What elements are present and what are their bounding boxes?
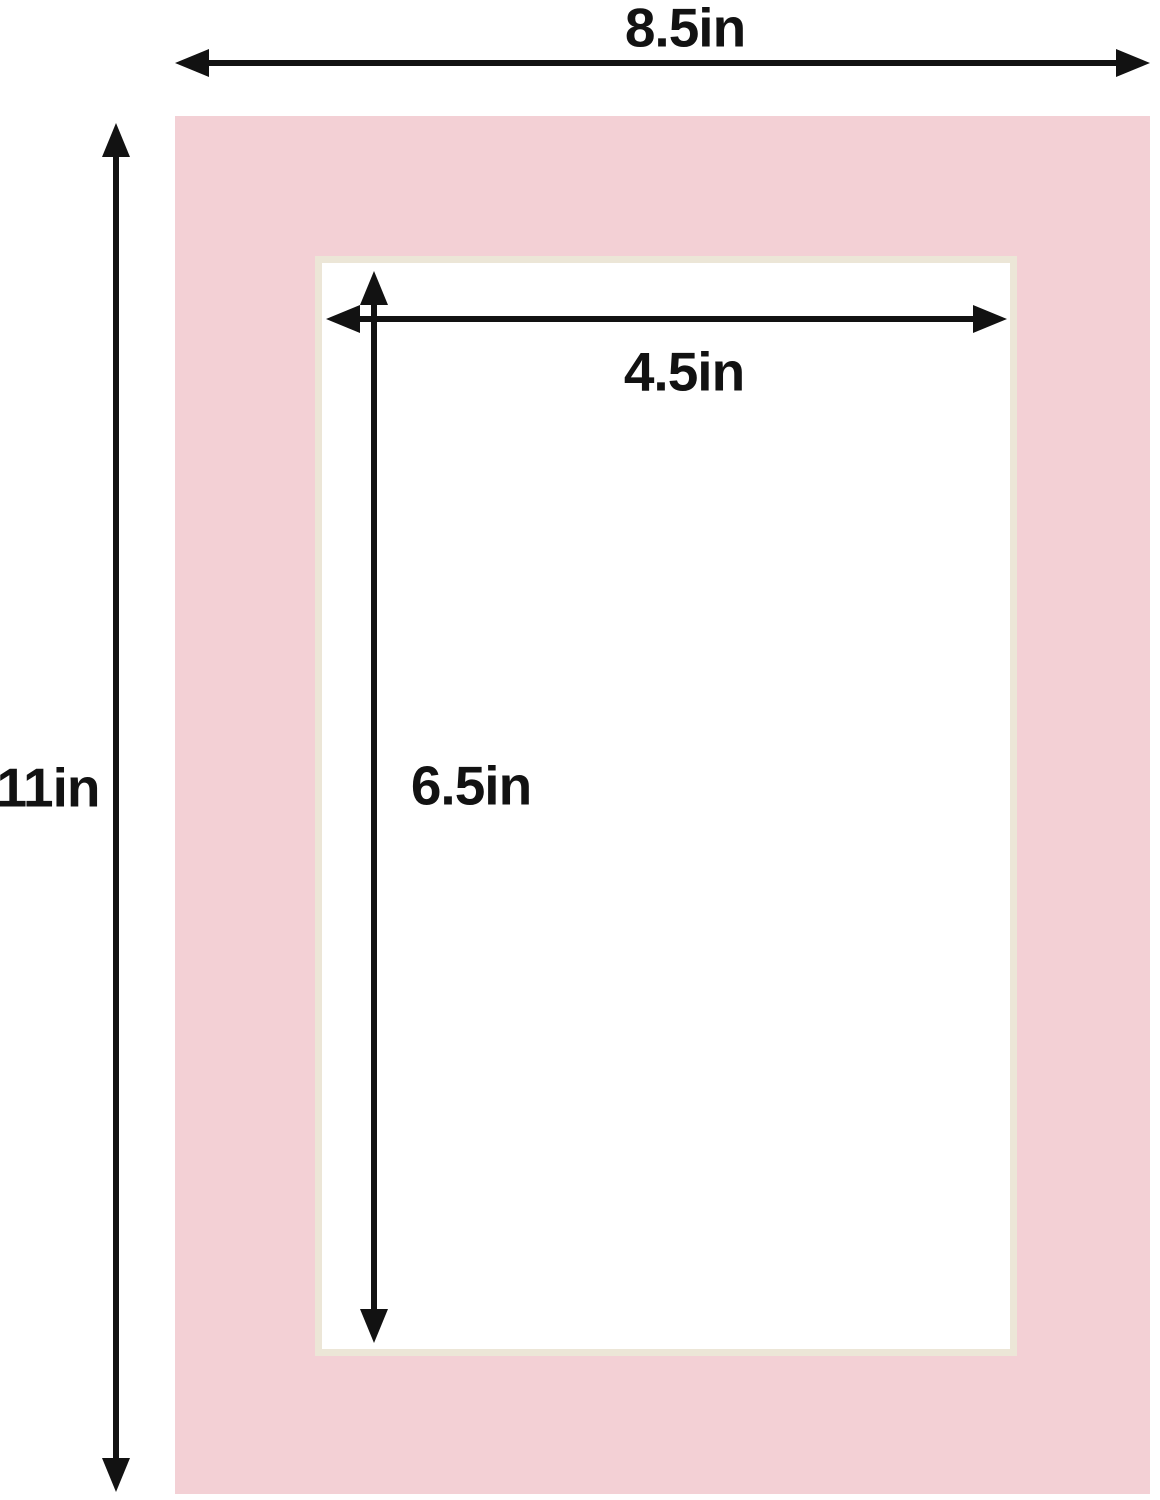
arrow-head-down-icon	[360, 1309, 388, 1343]
opening-height-label: 6.5in	[411, 759, 531, 814]
arrow-shaft	[352, 316, 981, 322]
arrow-head-down-icon	[102, 1458, 130, 1492]
opening-width-label: 4.5in	[624, 345, 744, 400]
arrow-head-right-icon	[973, 305, 1007, 333]
arrow-shaft	[201, 60, 1124, 66]
outer-height-arrow	[101, 123, 131, 1492]
mat-dimension-diagram: 8.5in 11in 4.5in 6.5in	[0, 0, 1160, 1500]
arrow-head-right-icon	[1116, 49, 1150, 77]
arrow-shaft	[113, 149, 119, 1466]
outer-height-label: 11in	[0, 761, 100, 816]
opening-width-arrow	[326, 304, 1007, 334]
opening-height-arrow	[359, 271, 389, 1343]
outer-width-label: 8.5in	[625, 1, 745, 56]
arrow-shaft	[371, 297, 377, 1317]
